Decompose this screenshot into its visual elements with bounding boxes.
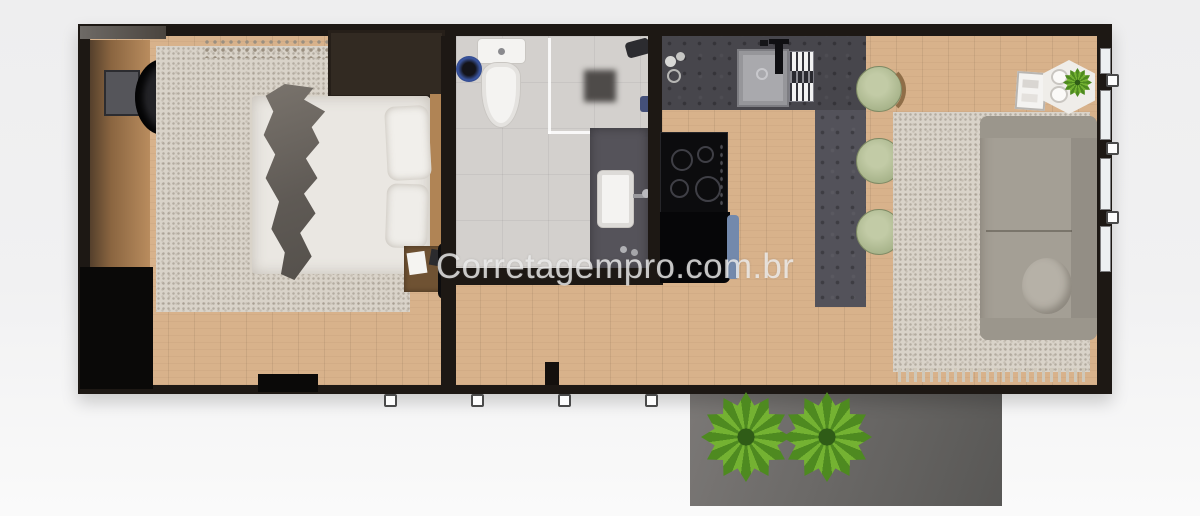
toilet-flush-button [498, 48, 505, 55]
kitchen-faucet-handle [769, 39, 789, 44]
nightstand-note [407, 251, 428, 275]
bedroom-bathroom-wall [441, 36, 456, 385]
burner-3 [670, 179, 689, 198]
anchor-clip-right-3 [1106, 211, 1119, 224]
sofa-armrest-top [980, 116, 1097, 138]
counter-item-2 [676, 52, 685, 61]
kitchen-soap-dispenser [760, 40, 768, 46]
burner-2 [697, 146, 714, 163]
shower-glass-vertical [548, 38, 551, 134]
kitchen-faucet [775, 42, 783, 74]
door-track-stub [545, 362, 559, 385]
waste-bin [456, 56, 482, 82]
bedroom-rug-fringe [203, 38, 337, 58]
right-window-pane-2 [1100, 90, 1111, 140]
anchor-clip-right-1 [1106, 74, 1119, 87]
sill-unit [258, 374, 318, 392]
cooktop [660, 132, 728, 214]
counter-item-3 [667, 69, 681, 83]
counter-item-1 [665, 56, 676, 67]
anchor-clip-right-2 [1106, 142, 1119, 155]
sofa [980, 116, 1097, 340]
burner-1 [671, 149, 693, 171]
kitchen-sink-drain [756, 68, 768, 80]
right-window-pane-3 [1100, 158, 1111, 210]
sofa-cushion-seam [986, 230, 1072, 232]
mini-cabinet [1015, 71, 1048, 111]
entry-lintel [80, 26, 166, 39]
vanity-sink [597, 170, 634, 228]
cooktop-controls [719, 143, 724, 205]
mini-cabinet-detail-1 [1022, 79, 1039, 88]
floor-plan [78, 24, 1112, 394]
right-window-pane-4 [1100, 226, 1111, 272]
bar-counter [815, 110, 866, 307]
living-rug-fringe [898, 368, 1088, 382]
bed-pillow-2 [385, 183, 429, 248]
right-window-pane-1 [1100, 48, 1111, 74]
headboard-cabinet [328, 30, 445, 98]
scene: Corretagempro.com.br [0, 0, 1200, 516]
sofa-backrest [1071, 116, 1097, 340]
dish-rack-middle [790, 71, 813, 83]
burner-4 [695, 176, 721, 202]
anchor-clip-bottom-1 [384, 394, 397, 407]
watermark: Corretagempro.com.br [436, 247, 794, 287]
sofa-round-cushion [1022, 258, 1072, 314]
sofa-armrest-bottom [980, 318, 1097, 340]
table-cup-2 [1050, 86, 1068, 103]
bar-stool-1-arm [854, 64, 906, 116]
anchor-clip-bottom-4 [645, 394, 658, 407]
anchor-clip-bottom-3 [558, 394, 571, 407]
wardrobe [80, 267, 153, 389]
mini-cabinet-detail-2 [1021, 93, 1038, 102]
shower-drain [584, 70, 616, 102]
anchor-clip-bottom-2 [471, 394, 484, 407]
bed-pillow-1 [384, 105, 432, 181]
